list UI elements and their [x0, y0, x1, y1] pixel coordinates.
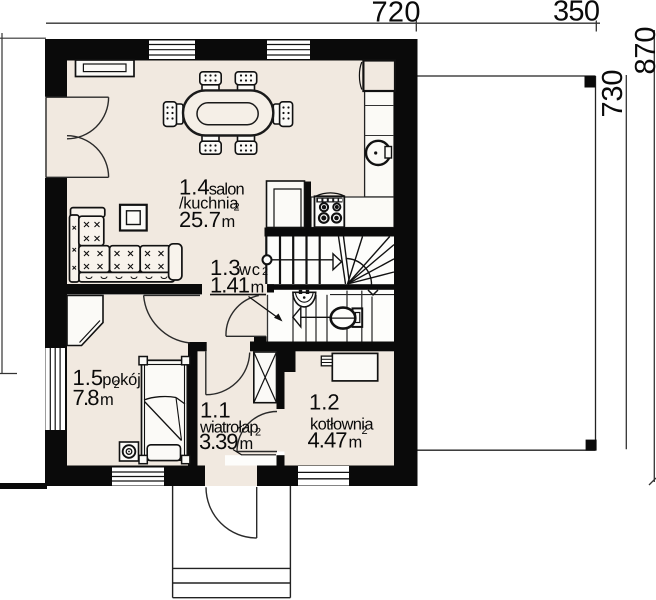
svg-text:2: 2: [255, 427, 261, 439]
svg-text:2: 2: [362, 425, 368, 437]
svg-text:720: 720: [372, 0, 421, 28]
svg-text:m: m: [240, 435, 254, 453]
svg-text:1.2: 1.2: [309, 390, 340, 415]
svg-text:4.47: 4.47: [308, 428, 348, 453]
svg-text:m: m: [251, 279, 265, 297]
svg-text:2: 2: [262, 266, 268, 278]
svg-text:2: 2: [234, 202, 240, 214]
svg-text:870: 870: [630, 27, 656, 75]
svg-text:m: m: [222, 213, 236, 231]
svg-text:350: 350: [553, 0, 600, 28]
svg-text:1.41: 1.41: [210, 273, 250, 298]
svg-text:m: m: [349, 434, 363, 452]
svg-text:7.8: 7.8: [73, 385, 100, 410]
svg-text:25.7: 25.7: [179, 207, 221, 232]
svg-text:m: m: [100, 391, 114, 409]
svg-text:pokój: pokój: [102, 371, 141, 389]
svg-text:3.39: 3.39: [199, 429, 239, 454]
svg-text:730: 730: [597, 70, 629, 118]
svg-text:2: 2: [114, 379, 120, 391]
